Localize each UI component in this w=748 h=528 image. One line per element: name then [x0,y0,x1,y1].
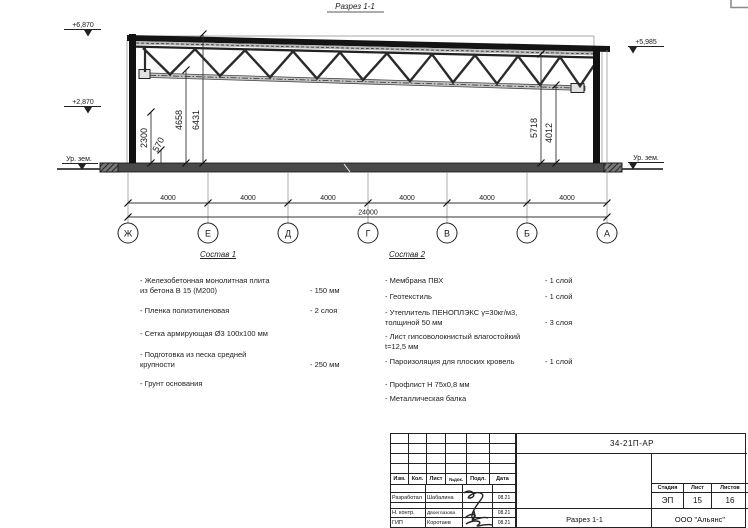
axis-label: Г [366,229,371,239]
person-name: Коротаев [426,518,463,528]
list-item: - Металлическая балка [385,394,580,404]
role-label: Н. контр. [391,509,426,518]
composition-list-2: Состав 2 - Мембрана ПВХ - 1 слой - Геоте… [385,250,580,404]
bay-dimension-chain: 4000 4000 4000 4000 4000 4000 [125,195,611,207]
svg-text:+6,870: +6,870 [72,22,94,29]
list-item: - Профлист Н 75х0,8 мм [385,380,580,390]
sheets-value: 16 [712,492,748,508]
bay-dim: 4000 [240,195,256,202]
doc-number-cell: 34-21П-АР [516,434,747,454]
company-name: ООО "Альянс" [675,515,725,524]
list-item: - Геотекстиль - 1 слой [385,292,580,302]
composition-2-title: Состав 2 [389,250,425,260]
revision-grid [391,434,516,474]
list-item: - Пароизоляция для плоских кровель - 1 с… [385,357,580,367]
elevation-mid-left: +2,870 [64,99,101,114]
list-item: - Подготовка из песка средней крупности … [140,350,352,370]
axis-bubbles: Ж Е Д Г В Б А [118,223,617,243]
vertical-dimension-labels: 2300 570 4658 6431 5718 4012 [139,110,554,154]
list-item: - Мембрана ПВХ - 1 слой [385,276,580,286]
svg-text:Ур. зем.: Ур. зем. [633,155,659,162]
dim-570: 570 [150,136,166,154]
list-item: - Сетка армирующая Ø3 100х100 мм [140,329,352,339]
composition-1-title: Состав 1 [200,250,236,260]
role-label: Разработал [391,493,426,503]
axis-label: А [604,229,610,239]
column-left [129,34,136,163]
floor-slab-end-left [100,163,118,172]
rev-header: Изм. [391,474,409,485]
ground-level-mark-right: Ур. зем. [628,155,664,170]
signature-scribbles [462,485,496,527]
sign-row-gip: ГИП Коротаев 08.21 [391,518,516,528]
person-name: Шабалина [426,493,463,503]
rev-header: №док. [446,474,467,485]
total-dimension: 24000 [125,210,611,221]
sign-date: 08.21 [493,518,516,528]
svg-text:+2,870: +2,870 [72,99,94,106]
bay-dim: 4000 [479,195,495,202]
sign-row-developer: Разработал Шабалина 08.21 [391,493,516,503]
stage-sheet-block: Стадия Лист Листов ЭП 15 16 ООО "Альянс" [651,454,747,528]
section-drawing: Разрез 1-1 [0,0,748,260]
axis-label: В [444,229,450,239]
list-item: - Грунт основания [140,379,352,389]
drawing-sheet: Разрез 1-1 [0,0,748,528]
bay-dim: 4000 [399,195,415,202]
composition-list-1: Состав 1 - Железобетонная монолитная пли… [140,250,352,389]
section-title: Разрез 1-1 [335,2,375,11]
svg-text:+5,985: +5,985 [635,39,657,46]
list-item: - Железобетонная монолитная плита из бет… [140,276,352,296]
bay-dim: 4000 [320,195,336,202]
dim-4012: 4012 [544,123,554,143]
drawing-name-cell: Разрез 1-1 [516,454,651,528]
axis-label: Ж [124,229,133,239]
dim-6431: 6431 [191,110,201,130]
sign-date: 08.21 [493,493,516,503]
floor-slab [100,163,622,172]
dim-4658: 4658 [174,110,184,130]
sign-row-checker: Н. контр. Двоеглазова 08.21 [391,509,516,518]
ground-level-mark-left: Ур. зем. [62,156,98,170]
sheet-value: 15 [684,492,712,508]
role-label: ГИП [391,518,426,528]
column-right [593,46,600,163]
axis-label: Б [524,229,530,239]
list-item: - Пленка полиэтиленовая - 2 слоя [140,306,352,316]
elevation-top-left: +6,870 [64,22,101,37]
doc-number: 34-21П-АР [610,439,654,448]
drawing-name: Разрез 1-1 [566,515,603,524]
elevation-top-right: +5,985 [628,39,664,54]
svg-text:Ур. зем.: Ур. зем. [66,156,92,163]
rev-header: Подл. [467,474,490,485]
person-name: Двоеглазова [426,509,463,518]
signature-rows: Разработал Шабалина 08.21 Н. контр. Двое… [391,485,516,528]
axis-label: Д [285,229,291,239]
rev-header: Кол. [409,474,427,485]
stage-value: ЭП [652,492,684,508]
rev-header: Лист [427,474,446,485]
rev-header: Дата [490,474,516,485]
sign-date: 08.21 [493,509,516,518]
list-item: - Лист гипсоволокнистый влагостойкий t=1… [385,332,580,352]
axis-label: Е [205,229,211,239]
bay-dim: 4000 [160,195,176,202]
list-item: - Утеплитель ПЕНОПЛЭКС γ=30кг/м3, толщин… [385,308,580,328]
revision-header-row: Изм. Кол. Лист №док. Подл. Дата [391,474,516,485]
frame-corner [731,0,748,8]
bay-dim: 4000 [559,195,575,202]
title-block: Изм. Кол. Лист №док. Подл. Дата Разработ… [390,433,746,528]
dim-5718: 5718 [529,118,539,138]
total-dim-label: 24000 [358,210,378,217]
dim-2300: 2300 [139,128,149,148]
